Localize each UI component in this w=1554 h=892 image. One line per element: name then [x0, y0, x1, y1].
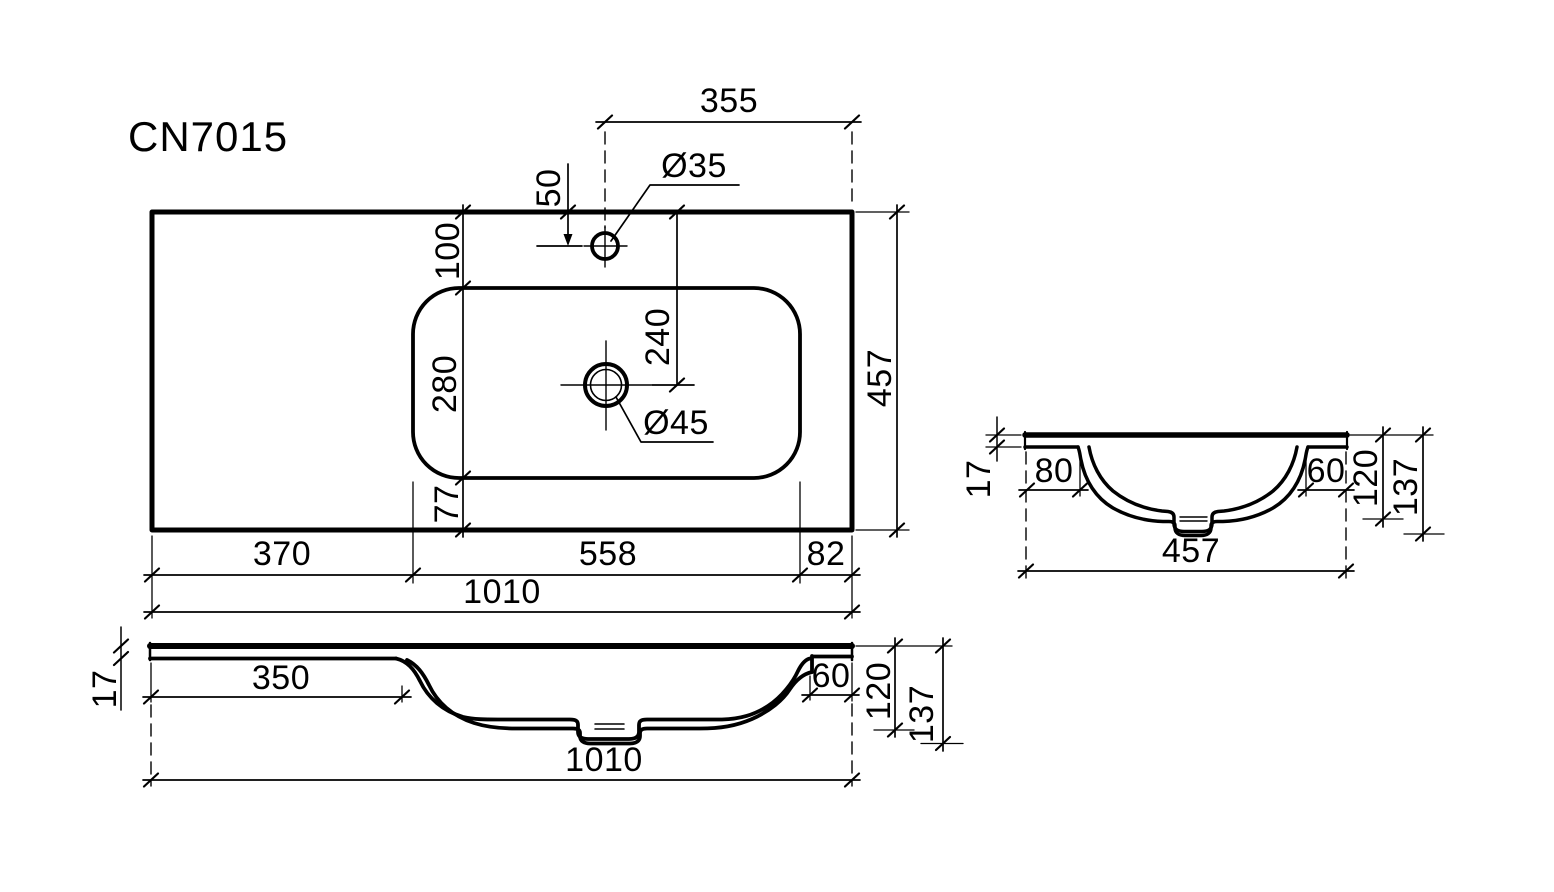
- label-drain-hole-diameter: Ø45: [643, 404, 709, 442]
- dim-label-240: 240: [639, 308, 677, 366]
- dim-label-side-17: 17: [960, 460, 998, 499]
- dim-front-overall-width: [143, 663, 860, 787]
- dim-label-1010-top: 1010: [463, 573, 541, 611]
- drain-hole: [561, 341, 651, 430]
- dim-label-front-1010: 1010: [565, 741, 643, 779]
- dim-side-thickness: [986, 417, 1021, 461]
- dim-label-front-137: 137: [903, 685, 941, 743]
- dim-label-370: 370: [253, 535, 311, 573]
- dim-label-50: 50: [530, 169, 568, 208]
- sink-outline: [152, 212, 852, 530]
- dim-label-side-457: 457: [1162, 532, 1220, 570]
- dim-label-front-17: 17: [86, 670, 124, 709]
- label-faucet-hole-diameter: Ø35: [661, 147, 727, 185]
- drawing-title: CN7015: [128, 113, 288, 160]
- dim-label-100: 100: [429, 222, 467, 280]
- dim-label-side-120: 120: [1347, 449, 1385, 507]
- dim-label-558: 558: [579, 535, 637, 573]
- dim-label-side-60: 60: [1307, 452, 1346, 490]
- dim-label-front-60: 60: [812, 657, 851, 695]
- dim-label-front-350: 350: [252, 659, 310, 697]
- dim-label-355: 355: [700, 82, 758, 120]
- dim-label-280: 280: [426, 355, 464, 413]
- dim-label-77: 77: [428, 485, 466, 524]
- dim-label-side-80: 80: [1035, 452, 1074, 490]
- dim-label-457: 457: [861, 349, 899, 407]
- front-section-view: [114, 627, 963, 787]
- faucet-hole: [584, 226, 627, 267]
- dim-label-front-120: 120: [860, 662, 898, 720]
- dim-label-side-137: 137: [1387, 458, 1425, 516]
- technical-drawing-sheet: CN7015: [0, 0, 1554, 892]
- dim-label-82: 82: [807, 535, 846, 573]
